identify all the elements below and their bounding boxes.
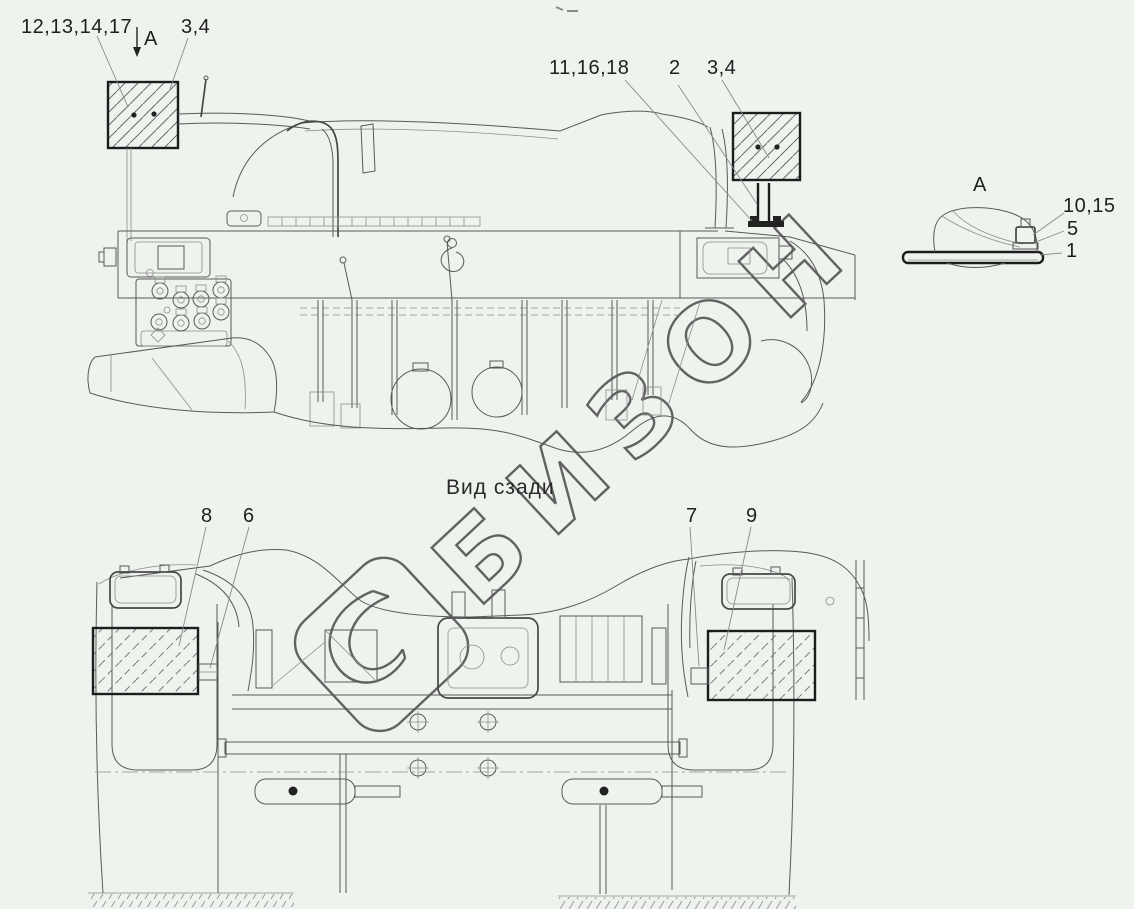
callout-detail-mid: 5 [1067,219,1079,239]
callout-parts-top-right: 11,16,18 [549,58,629,78]
callout-rear-left-bracket: 6 [243,506,255,526]
detail-a-view [903,208,1043,268]
left-lamp [110,565,181,608]
view-arrow-label: A [144,29,158,49]
ground-line [88,893,796,909]
control-panel [99,238,231,346]
right-lamp [722,567,795,609]
parts-diagram-page: БИЗОН [0,0,1134,909]
right-wheel [668,565,794,895]
callout-detail-bottom: 1 [1066,241,1078,261]
callout-rear-right-flap: 9 [746,506,758,526]
detail-a-title: A [973,175,987,195]
callout-parts-top-left: 12,13,14,17 [21,17,132,37]
page-artifact [556,7,578,11]
right-bracket [691,668,708,684]
callout-rear-left-flap: 8 [201,506,213,526]
right-flap [708,631,815,700]
left-flap [93,628,198,694]
left-wheel [96,565,218,893]
callout-rear-right-bracket: 7 [686,506,698,526]
rear-view-caption: Вид сзади [446,477,555,498]
view-direction-arrow [133,27,141,57]
callout-detail-top: 10,15 [1063,196,1116,216]
watermark-text: БИЗОН [411,178,882,628]
callout-mirror-top-left: 3,4 [181,17,210,37]
panel-bolts [151,276,229,342]
callout-mirror-top-right: 3,4 [707,58,736,78]
callout-stand: 2 [669,58,681,78]
technical-drawing: БИЗОН [0,0,1134,909]
